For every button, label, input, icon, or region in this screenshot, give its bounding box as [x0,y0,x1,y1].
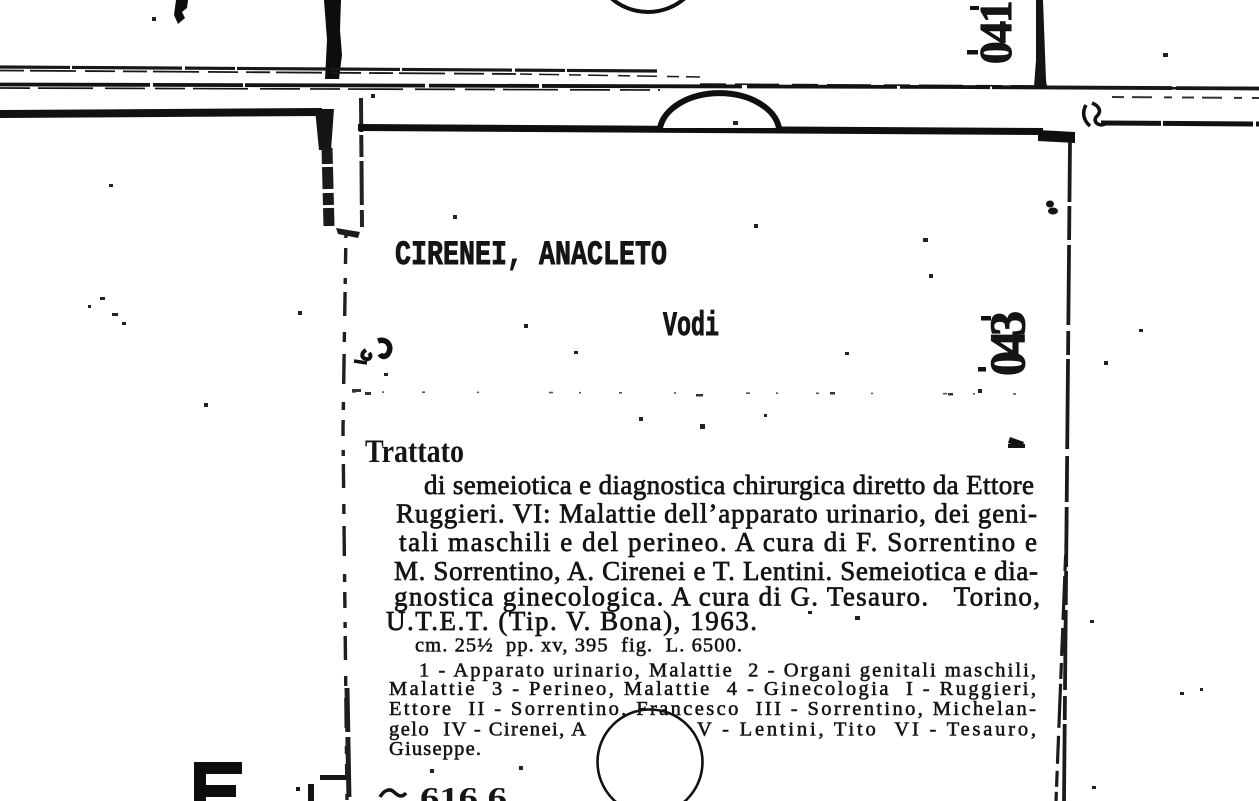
svg-text:gelo IV - Cirenei, A: gelo IV - Cirenei, A [389,718,586,740]
svg-text:Malattie 3 - Perineo, Malatti: Malattie 3 - Perineo, Malattie 4 - Ginec… [389,678,1036,700]
svg-text:041: 041 [971,2,1021,64]
svg-text:CIRENEI, ANACLETO: CIRENEI, ANACLETO [395,237,667,275]
svg-text:U.T.E.T. (Tip. V. Bona), 1963.: U.T.E.T. (Tip. V. Bona), 1963. [386,606,757,636]
svg-text:tali maschili e del perineo. A: tali maschili e del perineo. A cura di F… [399,527,1037,557]
svg-text:cm. 25½ pp. xv, 395 fig. L.: cm. 25½ pp. xv, 395 fig. L. 6500. [415,635,742,657]
svg-text:Ettore II - Sorrentino, Franc: Ettore II - Sorrentino, Francesco III - … [389,698,1036,720]
svg-text:616.6: 616.6 [420,780,507,801]
svg-text:Giuseppe.: Giuseppe. [389,738,481,760]
svg-text:043: 043 [979,312,1035,376]
svg-text:Ruggieri. VI: Malattie dell’ap: Ruggieri. VI: Malattie dell’apparato uri… [396,499,1037,529]
svg-text:Trattato: Trattato [365,434,464,470]
svg-text:di semeiotica e diagnostica ch: di semeiotica e diagnostica chirurgica d… [424,470,1034,500]
svg-text:Vodi: Vodi [663,308,719,346]
svg-text:V - Lentini, Tito VI - Tesaur: V - Lentini, Tito VI - Tesauro, [697,718,1036,740]
